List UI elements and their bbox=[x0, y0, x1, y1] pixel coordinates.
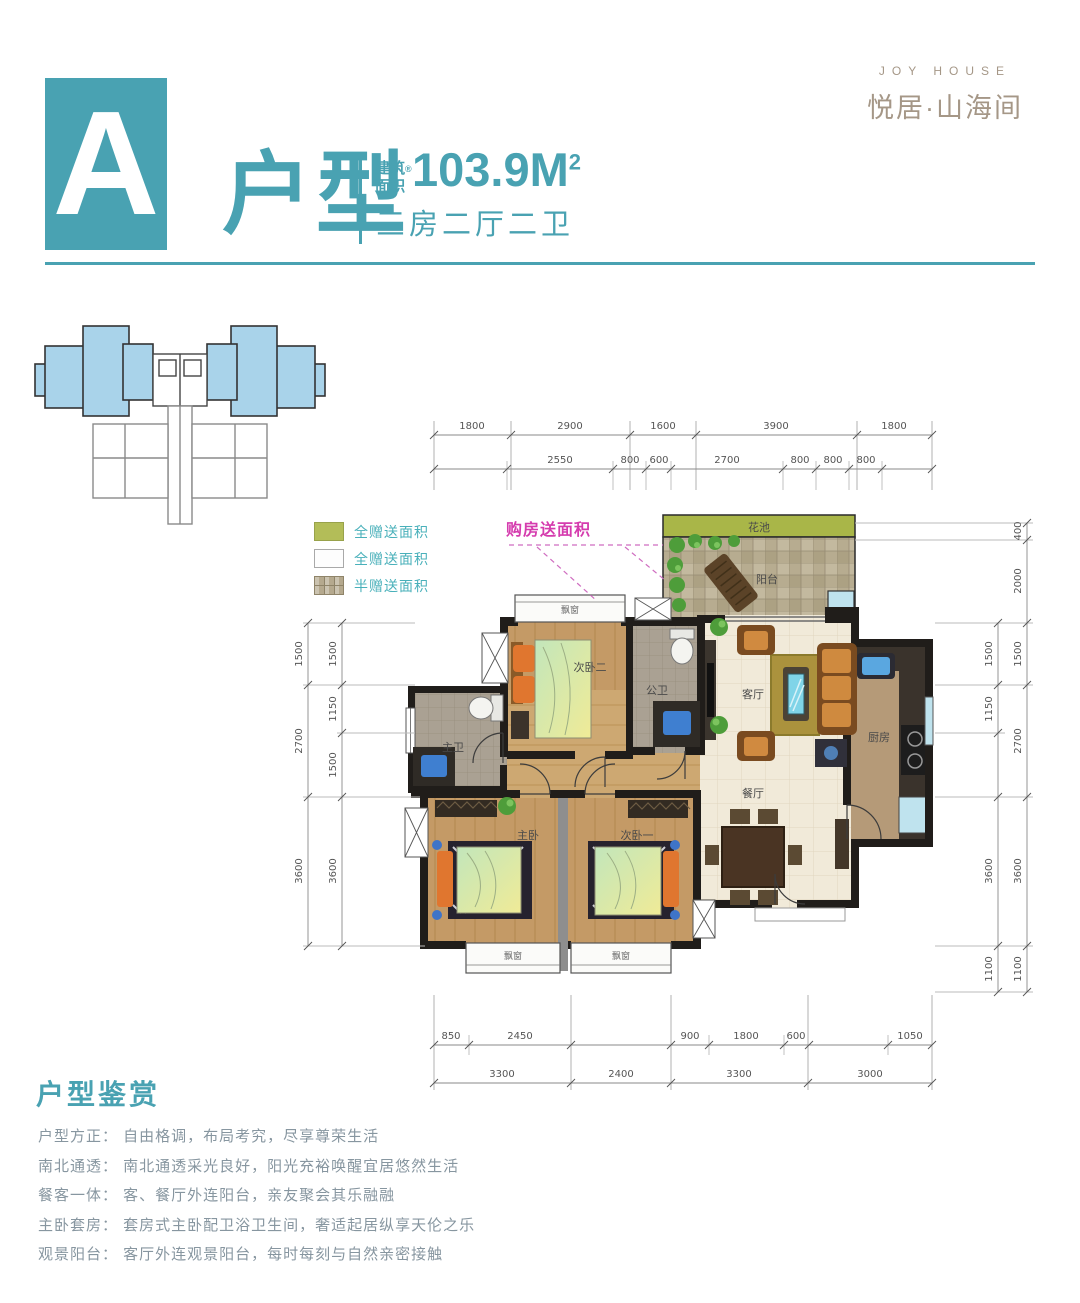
toilet bbox=[469, 697, 493, 719]
layout-desc: 三房二厅二卫 bbox=[376, 201, 574, 243]
area-prefix: 建筑® 面积 bbox=[375, 160, 412, 196]
appreciation-lines: 户型方正： 自由格调，布局考究，尽享尊荣生活 南北通透： 南北通透采光良好，阳光… bbox=[38, 1122, 475, 1270]
unit-letter: A bbox=[53, 90, 160, 238]
area-prefix-line2: 面积 bbox=[375, 178, 412, 196]
dim: 1500 bbox=[294, 641, 305, 666]
area-sup: 2 bbox=[569, 149, 581, 174]
kitchen-appliance bbox=[899, 797, 929, 833]
dim: 2550 bbox=[547, 455, 572, 466]
bay-window-label: 飘窗 bbox=[561, 604, 579, 615]
kitchen-label: 厨房 bbox=[868, 731, 890, 744]
dim: 3600 bbox=[1013, 858, 1024, 883]
dim: 3600 bbox=[328, 858, 339, 883]
dim: 900 bbox=[680, 1031, 699, 1042]
living-label: 客厅 bbox=[742, 687, 764, 701]
dim: 2400 bbox=[608, 1069, 633, 1080]
flower-bed-label: 花池 bbox=[748, 521, 770, 534]
dim: 1100 bbox=[1013, 956, 1024, 981]
bay-window-label: 飘窗 bbox=[504, 950, 522, 961]
bed bbox=[535, 640, 591, 738]
dim: 800 bbox=[790, 455, 809, 466]
master-bath-label: 主卫 bbox=[442, 741, 464, 754]
appreciation-title: 户型鉴赏 bbox=[36, 1073, 160, 1113]
dim: 1100 bbox=[984, 956, 995, 981]
registered-mark: ® bbox=[405, 164, 412, 174]
dim: 600 bbox=[786, 1031, 805, 1042]
kitchen-sink bbox=[862, 657, 890, 675]
bed bbox=[595, 847, 661, 915]
master-bedroom-label: 主卧 bbox=[517, 829, 539, 842]
gift-dashed-lines bbox=[509, 545, 666, 601]
dim: 3300 bbox=[489, 1069, 514, 1080]
bedroom2-label: 次卧二 bbox=[574, 660, 607, 674]
dim: 3300 bbox=[726, 1069, 751, 1080]
lower-units-outline bbox=[93, 406, 267, 524]
highlighted-unit-left bbox=[35, 326, 153, 416]
wardrobe bbox=[628, 800, 688, 818]
core-outline bbox=[153, 354, 207, 406]
bath-sink bbox=[421, 755, 447, 777]
dim: 1150 bbox=[984, 696, 995, 721]
appreciation-line: 餐客一体： 客、餐厅外连阳台，亲友聚会其乐融融 bbox=[38, 1181, 475, 1211]
dim: 800 bbox=[620, 455, 639, 466]
bath-sink bbox=[663, 711, 691, 735]
dim: 1800 bbox=[459, 421, 484, 432]
brand-en: JOY HOUSE bbox=[845, 64, 1045, 78]
dim: 1500 bbox=[328, 752, 339, 777]
dim: 800 bbox=[823, 455, 842, 466]
dim: 1150 bbox=[328, 696, 339, 721]
dim: 2900 bbox=[557, 421, 582, 432]
header-divider bbox=[359, 154, 362, 244]
dim: 600 bbox=[649, 455, 668, 466]
dim: 2450 bbox=[507, 1031, 532, 1042]
area-prefix-line1: 建筑 bbox=[375, 160, 405, 177]
dim: 2700 bbox=[714, 455, 739, 466]
dim: 1500 bbox=[984, 641, 995, 666]
unit-letter-badge: A bbox=[45, 78, 167, 250]
bedroom1-label: 次卧一 bbox=[621, 828, 654, 842]
dim: 1500 bbox=[1013, 641, 1024, 666]
dim: 2000 bbox=[1013, 568, 1024, 593]
header-rule bbox=[45, 262, 1035, 265]
floorplan-drawing: 飘窗 飘窗 飘窗 bbox=[285, 395, 1045, 1095]
area-value: 103.9M2 bbox=[412, 146, 581, 193]
dining-label: 餐厅 bbox=[742, 786, 764, 800]
floorplan-page: A 户型 建筑® 面积 103.9M2 三房二厅二卫 JOY HOUSE 悦居·… bbox=[0, 0, 1080, 1303]
dim: 1050 bbox=[897, 1031, 922, 1042]
appreciation-line: 观景阳台： 客厅外连观景阳台，每时每刻与自然亲密接触 bbox=[38, 1240, 475, 1270]
brand-cn: 悦居·山海间 bbox=[845, 86, 1045, 125]
dim: 2700 bbox=[1013, 728, 1024, 753]
appreciation-line: 主卧套房： 套房式主卧配卫浴卫生间，奢适起居纵享天伦之乐 bbox=[38, 1211, 475, 1241]
appreciation-line: 户型方正： 自由格调，布局考究，尽享尊荣生活 bbox=[38, 1122, 475, 1152]
toilet bbox=[671, 638, 693, 664]
dim: 400 bbox=[1013, 521, 1024, 540]
dim: 3600 bbox=[984, 858, 995, 883]
dim: 3000 bbox=[857, 1069, 882, 1080]
dim: 1800 bbox=[881, 421, 906, 432]
dim: 2700 bbox=[294, 728, 305, 753]
bay-window-label: 飘窗 bbox=[612, 950, 630, 961]
dim: 1500 bbox=[328, 641, 339, 666]
dim: 3600 bbox=[294, 858, 305, 883]
dim: 1800 bbox=[733, 1031, 758, 1042]
dim: 3900 bbox=[763, 421, 788, 432]
dim: 850 bbox=[441, 1031, 460, 1042]
public-bath-label: 公卫 bbox=[646, 685, 668, 697]
appreciation-line: 南北通透： 南北通透采光良好，阳光充裕唤醒宜居悠然生活 bbox=[38, 1152, 475, 1182]
area-number: 103.9M bbox=[412, 143, 569, 196]
dim: 800 bbox=[856, 455, 875, 466]
balcony-label: 阳台 bbox=[756, 572, 778, 586]
dim: 1600 bbox=[650, 421, 675, 432]
brand-logo: JOY HOUSE 悦居·山海间 bbox=[845, 64, 1045, 125]
